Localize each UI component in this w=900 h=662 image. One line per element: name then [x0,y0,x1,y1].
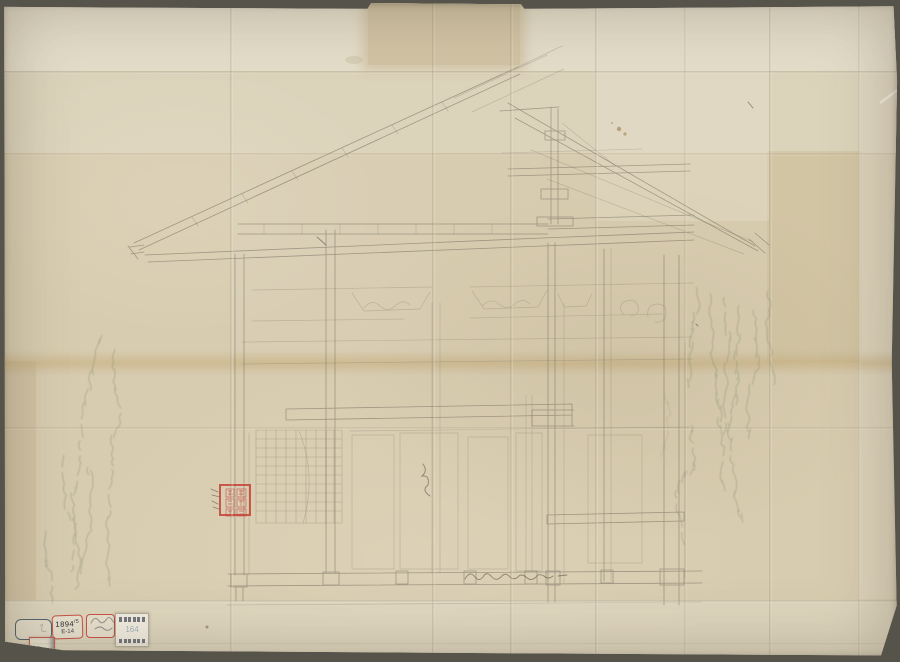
roof-and-frame-lines [128,67,769,605]
pencil-smudges-and-signature [211,102,753,580]
stains-and-tear [206,56,899,629]
label-center-number: 164 [125,626,138,634]
bottom-signature-squiggle [465,574,567,580]
label-printed-row-bottom [119,639,145,644]
small-stamp-number: 45- [34,644,55,653]
pencil-architectural-drawing [2,3,898,658]
label-printed-row-top [119,617,145,622]
red-number-stamp: 1894/5 E-14 [52,614,84,639]
drawing-sheet: 1894/5 E-14 164 45- [2,3,898,658]
small-red-stamp: 45- [29,637,55,660]
scanned-drawing-photo: { "page": { "kind": "scanned-architectur… [0,0,900,662]
red-cursive-stamp [86,614,115,638]
stamp-code-line: E-14 [53,628,82,636]
lattice-grid [256,430,342,523]
archive-label: 164 [115,613,149,647]
paper-tear-mark [880,88,898,103]
ink-bleedthrough-calligraphy [44,287,775,609]
